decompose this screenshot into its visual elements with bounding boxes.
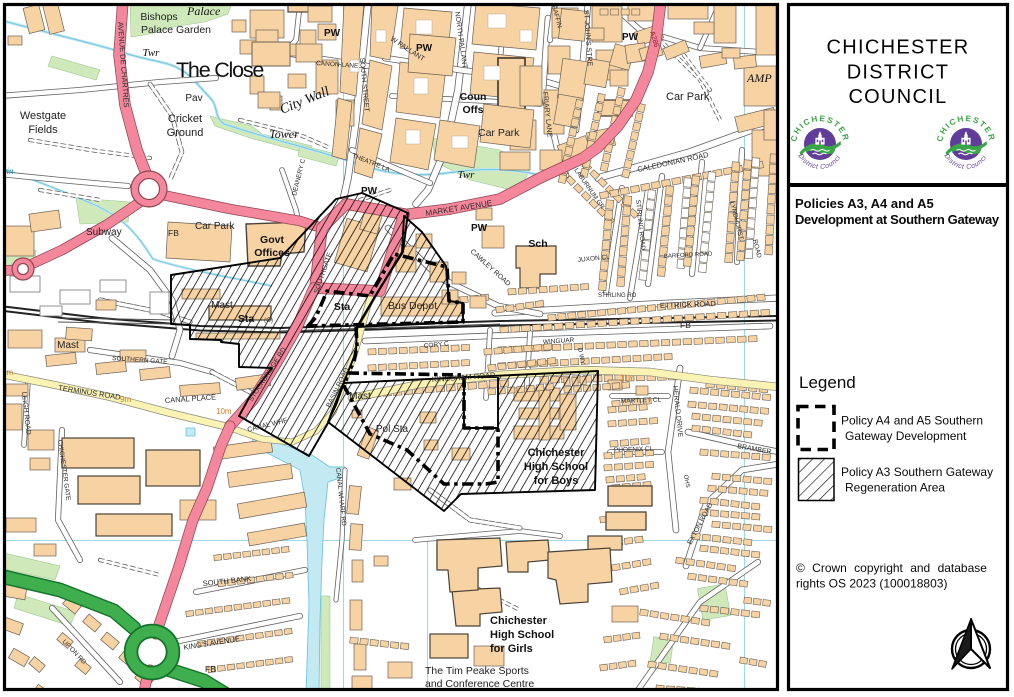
- svg-text:PHOENIX CL: PHOENIX CL: [614, 446, 654, 454]
- svg-text:Car Park: Car Park: [195, 221, 235, 232]
- svg-text:Ground: Ground: [167, 127, 204, 139]
- svg-text:Coun: Coun: [460, 91, 487, 103]
- svg-text:for Girls: for Girls: [490, 643, 533, 655]
- svg-text:Palace Garden: Palace Garden: [141, 24, 211, 36]
- svg-text:Westgate: Westgate: [20, 110, 66, 122]
- svg-text:COUNCIL: COUNCIL: [848, 86, 947, 108]
- svg-text:Sch: Sch: [528, 238, 547, 250]
- svg-text:Offs: Offs: [463, 104, 484, 116]
- svg-text:High School: High School: [524, 461, 588, 473]
- svg-text:Legend: Legend: [799, 373, 856, 392]
- svg-text:Pol Sta: Pol Sta: [376, 424, 409, 435]
- svg-text:(C): (C): [264, 317, 273, 324]
- svg-text:Chichester: Chichester: [490, 615, 548, 627]
- svg-text:for Boys: for Boys: [534, 475, 579, 487]
- svg-text:© Crown copyright and database: © Crown copyright and database: [796, 561, 987, 575]
- svg-text:9m: 9m: [120, 395, 131, 404]
- svg-text:Tower: Tower: [269, 127, 299, 141]
- svg-text:PW: PW: [622, 32, 639, 43]
- svg-text:FB: FB: [680, 320, 691, 330]
- svg-text:10m: 10m: [216, 407, 232, 416]
- svg-text:Offices: Offices: [254, 247, 290, 259]
- svg-text:FB: FB: [168, 228, 179, 238]
- svg-text:Development at Southern Gatew: Development at Southern Gateway: [795, 212, 1000, 227]
- svg-text:Mast: Mast: [349, 391, 371, 402]
- svg-text:High School: High School: [490, 629, 554, 641]
- svg-text:Chichester: Chichester: [528, 447, 586, 459]
- svg-text:Cricket: Cricket: [168, 113, 202, 125]
- svg-text:Twr: Twr: [143, 47, 161, 59]
- svg-text:Car Park: Car Park: [478, 127, 520, 139]
- svg-text:Fields: Fields: [28, 124, 58, 136]
- svg-text:PW: PW: [361, 186, 378, 197]
- svg-text:Policy A4 and A5 Southern: Policy A4 and A5 Southern: [841, 414, 983, 428]
- svg-text:11m: 11m: [620, 374, 635, 383]
- svg-text:Policies A3, A4 and A5: Policies A3, A4 and A5: [795, 196, 934, 211]
- svg-text:Pav: Pav: [185, 93, 202, 104]
- svg-text:Sta: Sta: [238, 313, 255, 325]
- svg-text:DISTRICT: DISTRICT: [847, 61, 950, 83]
- svg-text:CHICHESTER: CHICHESTER: [826, 37, 969, 59]
- svg-text:rights OS 2023 (100018803): rights OS 2023 (100018803): [796, 577, 947, 591]
- svg-text:AMP: AMP: [746, 71, 772, 85]
- svg-text:Mast: Mast: [211, 300, 233, 311]
- svg-text:The Close: The Close: [176, 58, 263, 82]
- svg-text:Govt: Govt: [260, 234, 284, 246]
- svg-text:The Tim Peake Sports: The Tim Peake Sports: [425, 665, 529, 677]
- svg-text:Subway: Subway: [86, 227, 122, 238]
- svg-text:Gateway Development: Gateway Development: [845, 429, 967, 443]
- svg-text:FB: FB: [205, 664, 216, 674]
- svg-text:STIRLING RO: STIRLING RO: [598, 293, 637, 299]
- svg-text:Car Park: Car Park: [666, 91, 710, 103]
- svg-text:Regeneration Area: Regeneration Area: [845, 481, 945, 495]
- svg-text:MARTLET CL: MARTLET CL: [621, 397, 662, 405]
- svg-text:Sta: Sta: [334, 301, 351, 313]
- svg-text:PW: PW: [471, 223, 488, 234]
- svg-text:PW: PW: [324, 28, 341, 39]
- svg-text:Bus Depot: Bus Depot: [388, 300, 437, 312]
- svg-text:Mast: Mast: [57, 340, 79, 351]
- svg-text:Twr: Twr: [458, 169, 476, 181]
- svg-text:Policy A3 Southern Gateway: Policy A3 Southern Gateway: [841, 465, 993, 479]
- svg-text:Bishops: Bishops: [140, 11, 177, 23]
